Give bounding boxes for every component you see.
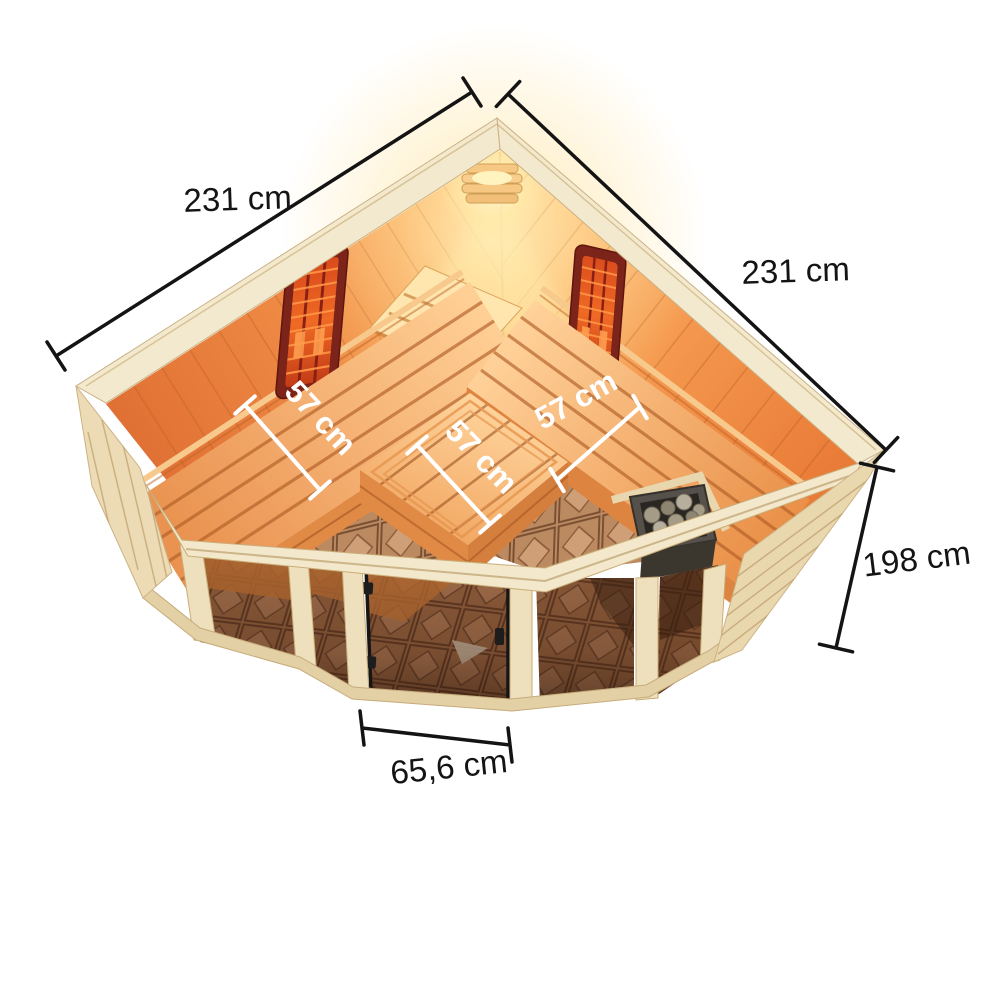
dimension-width-left-label: 231 cm: [183, 178, 292, 219]
lamp-bright-core: [472, 171, 512, 185]
sauna-dimension-diagram: 57 cm 57 cm 57 cm 231 cm 231 cm 198 cm 6…: [0, 0, 1000, 1000]
front-post-4: [510, 576, 532, 708]
door-handle: [495, 628, 504, 645]
dimension-width-right-label: 231 cm: [741, 250, 850, 291]
product-dimension-image: 57 cm 57 cm 57 cm 231 cm 231 cm 198 cm 6…: [0, 0, 1000, 1000]
